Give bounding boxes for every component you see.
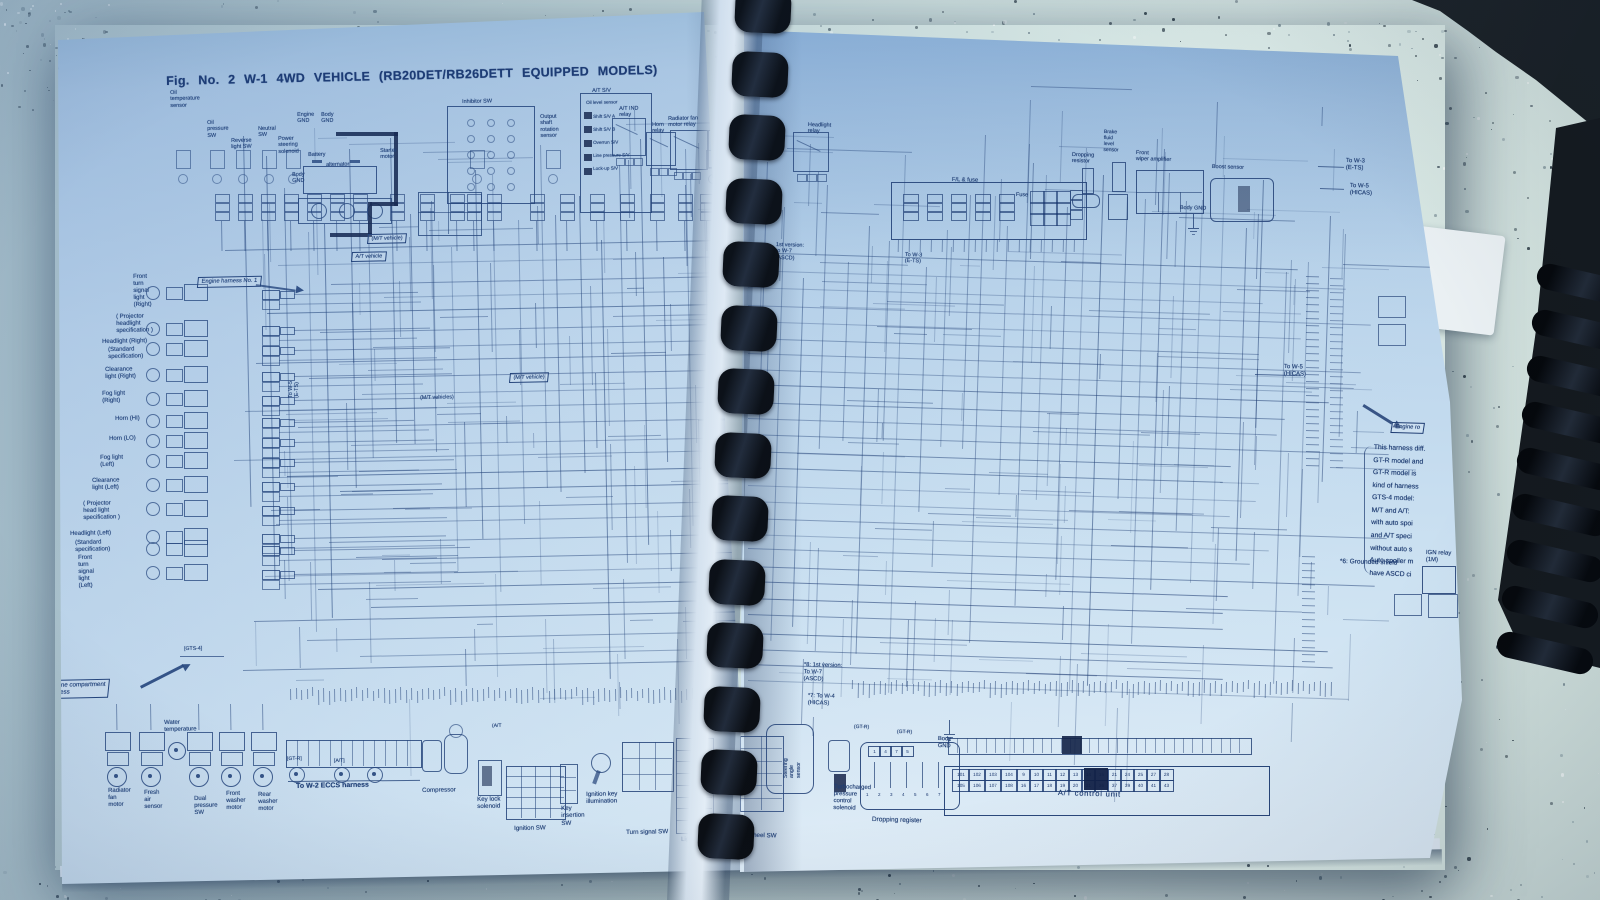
comb-loop xyxy=(711,495,769,542)
comb-loop xyxy=(708,558,766,605)
comb-loop xyxy=(731,50,789,97)
comb-binding xyxy=(0,0,1600,900)
comb-loop xyxy=(700,749,758,796)
comb-loop xyxy=(722,241,780,288)
comb-loop xyxy=(697,812,755,859)
comb-loop xyxy=(725,177,783,224)
comb-loop xyxy=(728,114,786,161)
comb-loop xyxy=(734,0,792,34)
comb-loop xyxy=(720,304,778,351)
comb-loop xyxy=(714,431,772,478)
comb-loop xyxy=(703,685,761,732)
comb-loop xyxy=(717,368,775,415)
comb-loop xyxy=(706,622,764,669)
photo-wiring-diagram-book: Oil temperature sensorOil pressure SWRev… xyxy=(0,0,1600,900)
